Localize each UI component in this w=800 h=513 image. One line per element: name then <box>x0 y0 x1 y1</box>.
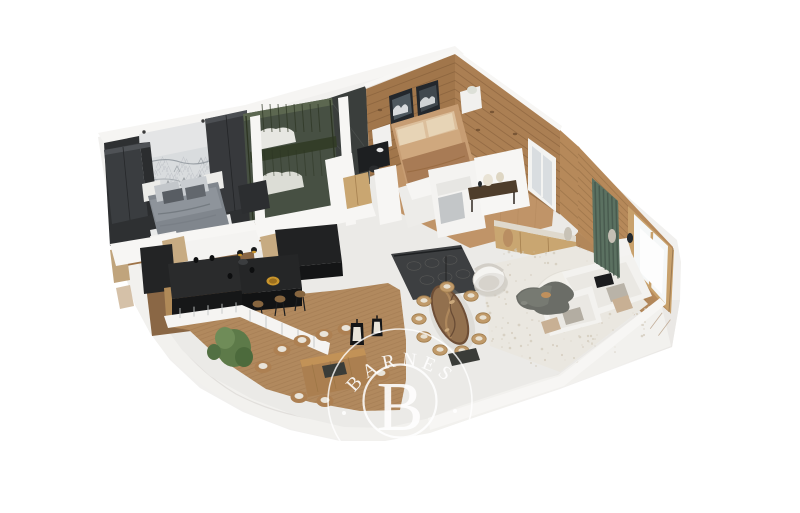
svg-text:B: B <box>377 369 424 446</box>
